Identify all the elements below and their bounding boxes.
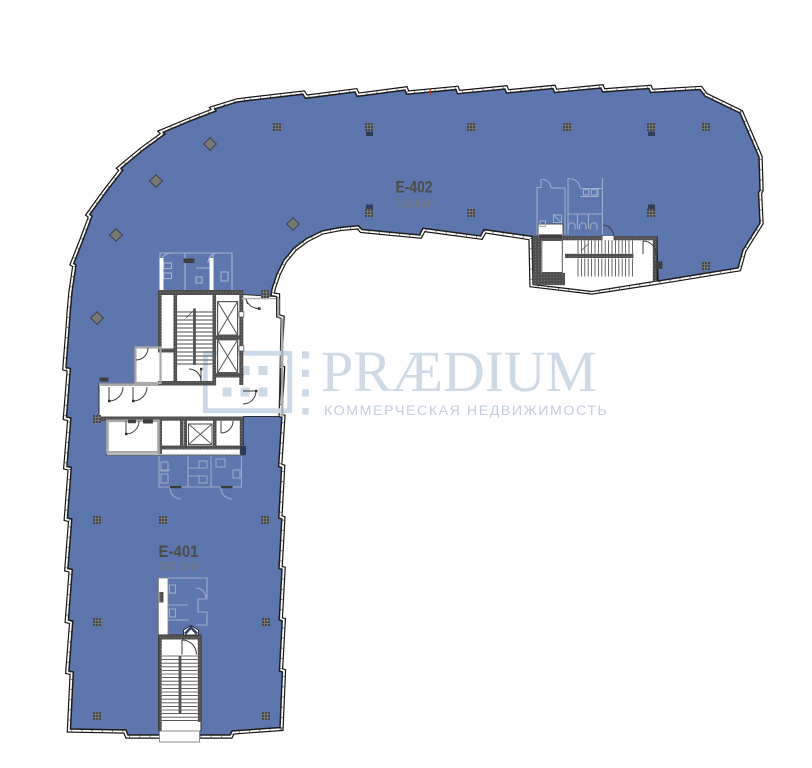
svg-text:E-401: E-401	[159, 542, 199, 561]
svg-text:718.4 м²: 718.4 м²	[395, 197, 434, 211]
svg-text:PRÆDIUM: PRÆDIUM	[321, 339, 597, 404]
svg-text:E-402: E-402	[396, 178, 433, 197]
svg-text:389.3 м²: 389.3 м²	[159, 560, 199, 574]
svg-text:КОММЕРЧЕСКАЯ НЕДВИЖИМОСТЬ: КОММЕРЧЕСКАЯ НЕДВИЖИМОСТЬ	[324, 403, 608, 419]
